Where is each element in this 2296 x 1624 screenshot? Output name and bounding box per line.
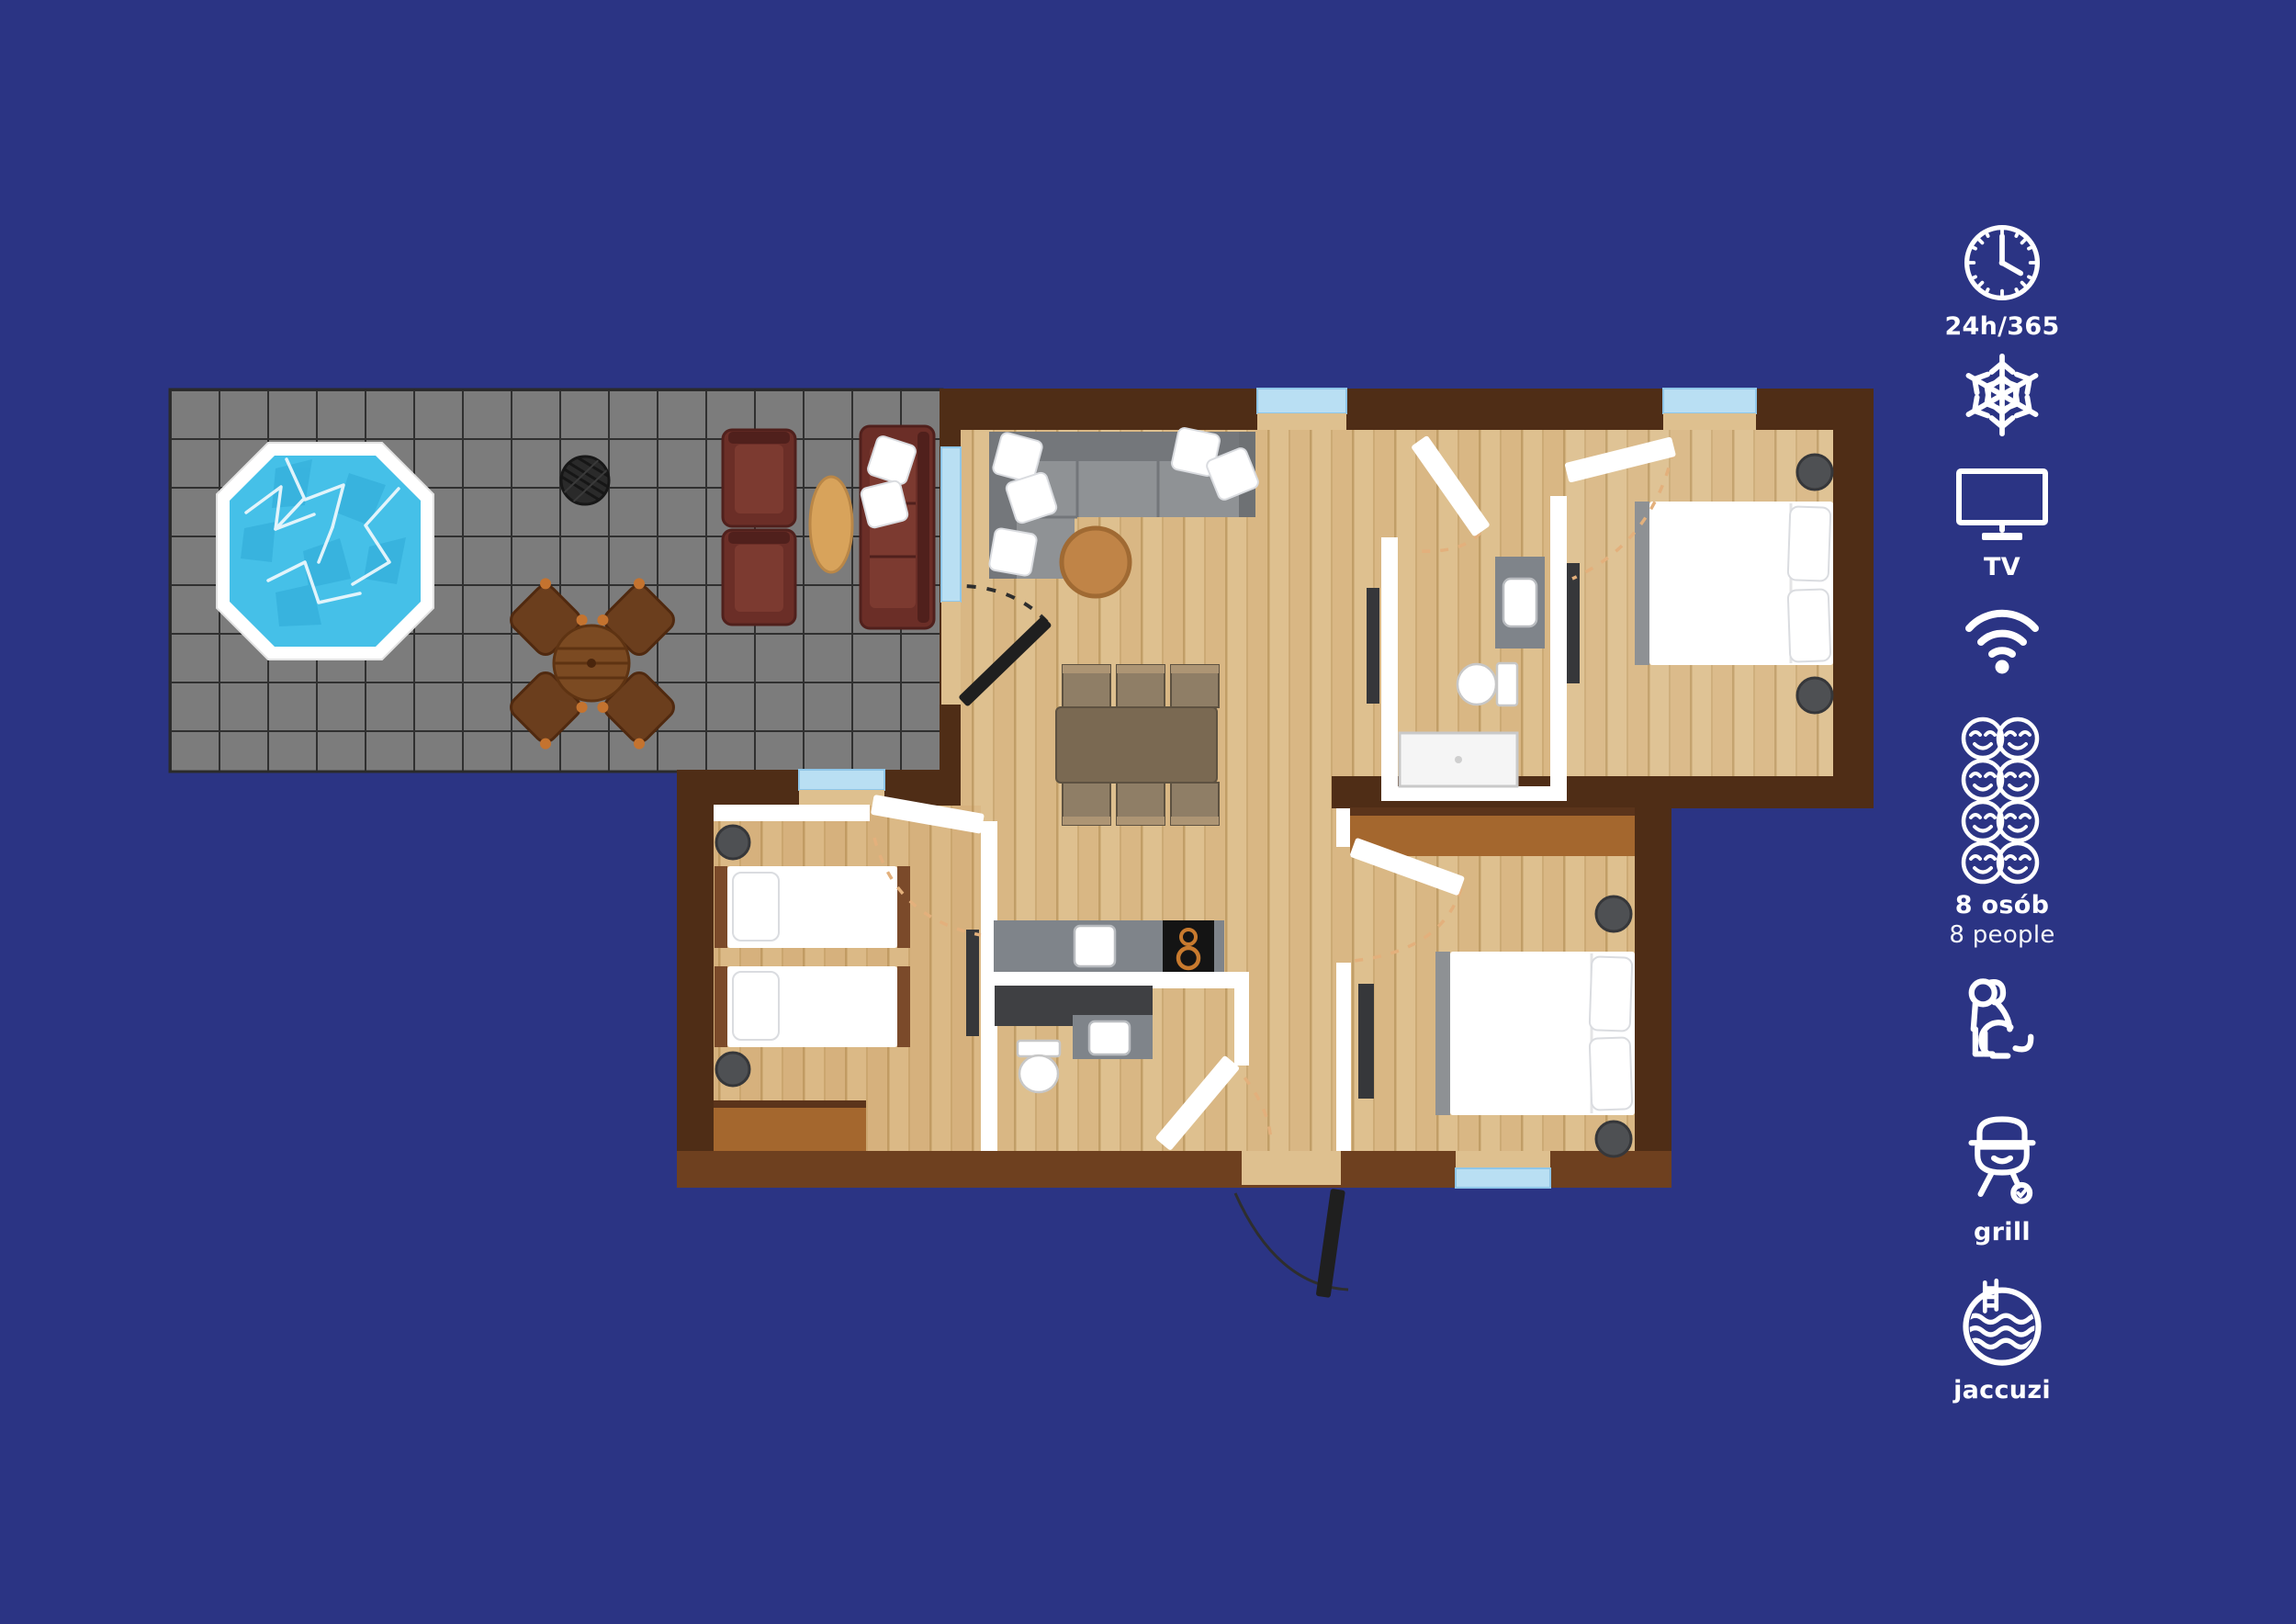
- snowflake-icon: [1958, 351, 2046, 439]
- jacuzzi-tub: [217, 443, 433, 660]
- window: [1456, 1168, 1550, 1188]
- wifi-icon: [1958, 599, 2046, 676]
- amenity-24h-support: 24h/365: [1910, 219, 2094, 341]
- nightstand: [1797, 678, 1832, 713]
- wardrobe-strip: [1567, 563, 1580, 683]
- sofa-pillow: [860, 479, 908, 528]
- amenity-tv: TV: [1910, 467, 2094, 581]
- amenity-jacuzzi: jaccuzi: [1910, 1275, 2094, 1404]
- floor-plan-page: 24h/365 TV: [0, 0, 2296, 1624]
- dining-chair: [1171, 665, 1219, 707]
- window: [1257, 389, 1346, 413]
- dining-chair: [1171, 783, 1219, 825]
- kitchen-sink: [1075, 926, 1115, 966]
- outdoor-armchair: [723, 530, 795, 625]
- twin-bed: [715, 866, 910, 948]
- amenity-label: 24h/365: [1944, 312, 2059, 341]
- window: [799, 770, 884, 790]
- people-icon: [1960, 716, 2044, 885]
- wardrobe-strip: [1358, 984, 1374, 1099]
- bed-pillow: [733, 972, 779, 1040]
- sofa-pillow: [988, 527, 1037, 576]
- amenity-wifi: [1910, 599, 2094, 676]
- amenity-capacity: 8 osób 8 people: [1910, 716, 2094, 949]
- window: [1663, 389, 1756, 413]
- bed-pillow: [1590, 956, 1633, 1031]
- nightstand: [1797, 455, 1832, 490]
- bed-pillow: [1590, 1037, 1633, 1110]
- amenity-label: grill: [1974, 1218, 2031, 1246]
- bed-pillow: [1788, 589, 1831, 661]
- outdoor-armchair: [723, 430, 795, 526]
- coffee-table: [1062, 528, 1130, 596]
- dog-icon: [1954, 972, 2050, 1067]
- bathroom-toilet: [1458, 663, 1517, 705]
- nightstand: [716, 1053, 749, 1086]
- back-door-leaf: [1316, 1189, 1345, 1298]
- wc-sink: [1089, 1021, 1130, 1054]
- entry-glass: [941, 447, 961, 602]
- amenity-winter: [1910, 351, 2094, 439]
- dresser: [714, 1100, 866, 1151]
- back-door: [1235, 1151, 1348, 1298]
- amenity-label: 8 osób: [1955, 891, 2049, 919]
- nightstand: [1596, 897, 1631, 931]
- dining-chair: [1117, 665, 1165, 707]
- bathroom-sink: [1503, 579, 1536, 626]
- amenity-label: TV: [1984, 553, 2020, 581]
- deck: [170, 389, 942, 772]
- twin-bed: [715, 966, 910, 1047]
- double-bed: [1635, 502, 1833, 665]
- dining-chair: [1063, 783, 1110, 825]
- amenity-label: jaccuzi: [1953, 1376, 2051, 1404]
- jacuzzi-icon: [1954, 1275, 2050, 1370]
- outdoor-coffee-table: [810, 477, 852, 572]
- tv-icon: [1954, 467, 2050, 547]
- nightstand: [716, 826, 749, 859]
- amenity-sublabel: 8 people: [1949, 921, 2054, 949]
- dining-chair: [1063, 665, 1110, 707]
- hall-radiator: [1367, 588, 1379, 704]
- outdoor-sofa: [860, 426, 934, 628]
- wc-toilet: [1018, 1041, 1060, 1092]
- double-bed: [1435, 952, 1635, 1115]
- amenity-pets: [1910, 972, 2094, 1067]
- wardrobe-strip: [966, 930, 979, 1036]
- bed-pillow: [1788, 506, 1831, 581]
- nightstand: [1596, 1122, 1631, 1156]
- dining-table: [1056, 707, 1217, 783]
- clock-icon: [1958, 219, 2046, 307]
- amenity-grill: grill: [1910, 1106, 2094, 1246]
- grill-icon: [1951, 1106, 2054, 1212]
- bed-pillow: [733, 873, 779, 941]
- dining-chair: [1117, 783, 1165, 825]
- dining-area: [1056, 665, 1219, 825]
